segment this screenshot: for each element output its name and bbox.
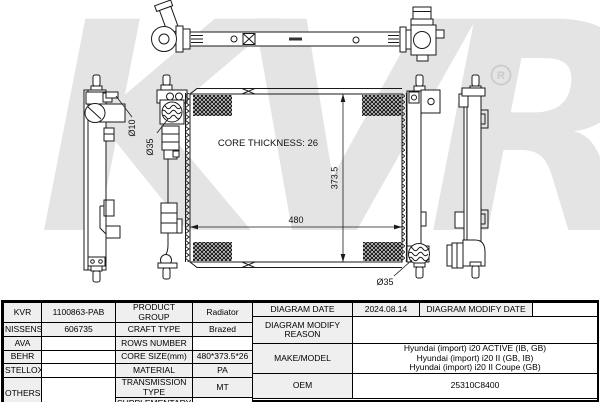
diagram-modify-reason-label: DIAGRAM MODIFY REASON xyxy=(253,317,353,344)
make-model-line-3: Hyundai (import) i20 II Coupe (GB) xyxy=(354,363,596,373)
core-size-value: 480*373.5*26 xyxy=(193,351,253,364)
radiator-technical-drawing: Ø10 xyxy=(0,0,600,300)
product-group-value: Radiator xyxy=(193,303,253,323)
inlet-port xyxy=(160,100,184,124)
height-dimension: 373.5 xyxy=(330,94,346,262)
row-oem: OEM 25310C8400 xyxy=(253,374,598,399)
diagram-date-label: DIAGRAM DATE xyxy=(253,303,353,317)
row-kvr: KVR 1100863-PAB PRODUCT GROUP Radiator xyxy=(4,303,253,323)
brand-nissens: NISSENS xyxy=(4,323,42,337)
hatch-bottom-right xyxy=(363,242,402,261)
diagram-date-value: 2024.08.14 xyxy=(353,303,420,317)
top-view xyxy=(152,0,445,61)
transmission-type-value: MT xyxy=(193,378,253,398)
spec-table-right-section: DIAGRAM DATE 2024.08.14 DIAGRAM MODIFY D… xyxy=(252,302,598,399)
bottom-tank-strip xyxy=(190,262,402,268)
supplementary-label: SUPPLEMENTARY xyxy=(116,398,193,402)
row-others: OTHERS TRANSMISSION TYPE MT xyxy=(4,378,253,398)
radiator-spec-sheet: KVR xyxy=(0,0,600,402)
bleed-pipe xyxy=(106,92,118,98)
part-number-behr xyxy=(42,351,116,364)
dia10-label: Ø10 xyxy=(127,119,137,136)
spec-table: KVR 1100863-PAB PRODUCT GROUP Radiator N… xyxy=(1,300,599,402)
hatch-top-right xyxy=(362,95,401,116)
make-model-value: Hyundai (import) i20 ACTIVE (IB, GB) Hyu… xyxy=(353,344,598,374)
left-tank-view: Ø35 xyxy=(145,75,190,279)
make-model-label: MAKE/MODEL xyxy=(253,344,353,374)
row-make-model: MAKE/MODEL Hyundai (import) i20 ACTIVE (… xyxy=(253,344,598,374)
row-nissens: NISSENS 606735 CRAFT TYPE Brazed xyxy=(4,323,253,337)
part-number-stellox xyxy=(42,364,116,378)
left-core-serration xyxy=(186,93,191,262)
row-ava: AVA ROWS NUMBER xyxy=(4,337,253,351)
oem-label: OEM xyxy=(253,374,353,399)
inlet-pipe-side xyxy=(85,104,125,123)
supplementary-value xyxy=(193,398,253,402)
svg-text:R: R xyxy=(497,70,505,82)
craft-type-value: Brazed xyxy=(193,323,253,337)
product-group-label: PRODUCT GROUP xyxy=(116,303,193,323)
rows-number-value xyxy=(193,337,253,351)
front-view: CORE THICKNESS: 26 373.5 480 xyxy=(190,89,407,268)
width-dim-label: 480 xyxy=(288,215,303,225)
registered-trademark-icon: R xyxy=(492,66,511,85)
dia35-bottom-label: Ø35 xyxy=(376,277,393,287)
left-side-view: Ø10 xyxy=(84,75,137,282)
hatch-top-left xyxy=(193,95,232,116)
top-view-left-pipe xyxy=(152,0,191,52)
craft-type-label: CRAFT TYPE xyxy=(116,323,193,337)
oem-value: 25310C8400 xyxy=(353,374,598,399)
brand-ava: AVA xyxy=(4,337,42,351)
material-label: MATERIAL xyxy=(116,364,193,378)
spec-table-left-section: KVR 1100863-PAB PRODUCT GROUP Radiator N… xyxy=(3,302,253,402)
top-view-filler-neck xyxy=(400,7,444,61)
diagram-modify-date-label: DIAGRAM MODIFY DATE xyxy=(420,303,533,317)
slot-mark xyxy=(289,38,302,41)
part-number-nissens: 606735 xyxy=(42,323,116,337)
right-core-serration xyxy=(402,93,407,262)
core-thickness-label: CORE THICKNESS: 26 xyxy=(218,138,318,149)
brand-behr: BEHR xyxy=(4,351,42,364)
part-number-ava xyxy=(42,337,116,351)
hatch-bottom-left xyxy=(193,242,232,261)
row-stellox: STELLOX MATERIAL PA xyxy=(4,364,253,378)
side-clip-upper xyxy=(481,110,488,128)
width-dimension: 480 xyxy=(190,215,402,229)
row-modify-reason: DIAGRAM MODIFY REASON xyxy=(253,317,598,344)
row-behr: BEHR CORE SIZE(mm) 480*373.5*26 xyxy=(4,351,253,364)
diagram-modify-date-value xyxy=(533,303,598,317)
rows-number-label: ROWS NUMBER xyxy=(116,337,193,351)
brand-kvr: KVR xyxy=(4,303,42,323)
mounting-brace-mark xyxy=(243,34,255,45)
transmission-type-label: TRANSMISSION TYPE xyxy=(116,378,193,398)
row-diagram-date: DIAGRAM DATE 2024.08.14 DIAGRAM MODIFY D… xyxy=(253,303,598,317)
height-dim-label: 373.5 xyxy=(330,167,340,190)
brand-others: OTHERS xyxy=(4,378,42,402)
dia35-left-label: Ø35 xyxy=(145,138,155,155)
material-value: PA xyxy=(193,364,253,378)
part-number-kvr: 1100863-PAB xyxy=(42,303,116,323)
diagram-modify-reason-value xyxy=(353,317,598,344)
core-size-label: CORE SIZE(mm) xyxy=(116,351,193,364)
brand-stellox: STELLOX xyxy=(4,364,42,378)
right-side-view xyxy=(447,75,488,278)
part-number-others xyxy=(42,378,116,402)
top-tank-strip xyxy=(190,89,402,95)
side-clip-lower xyxy=(481,210,488,228)
